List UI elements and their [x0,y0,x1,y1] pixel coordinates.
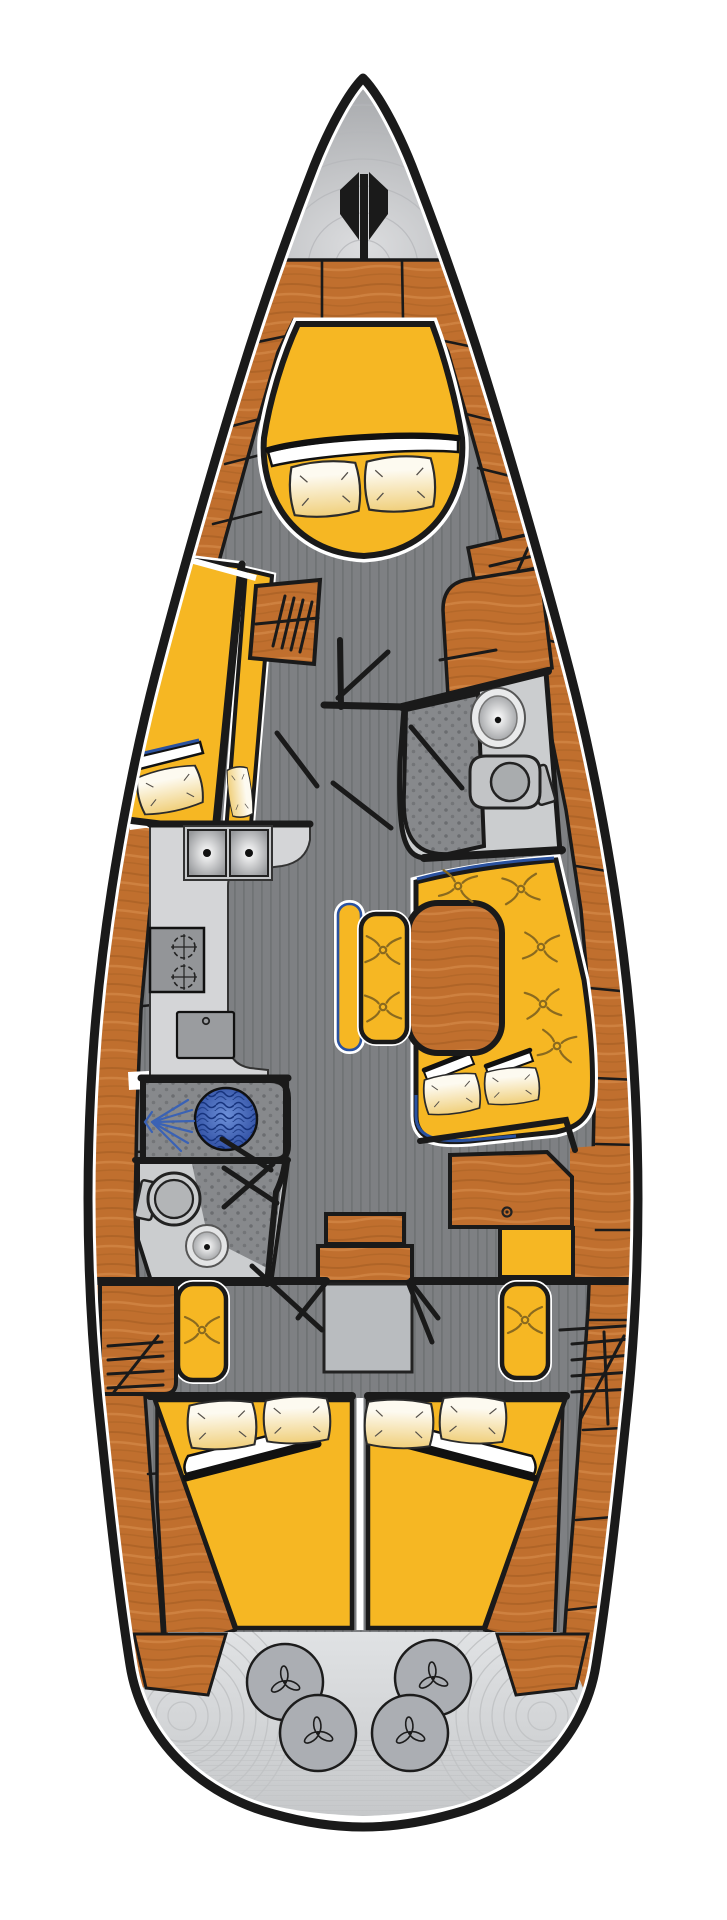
toilet [470,756,556,808]
pillow [364,1399,434,1450]
nav-bench [500,1228,573,1277]
salon-table [408,903,502,1053]
companionway-step [318,1246,412,1282]
washbasin [186,1225,228,1267]
pillow [483,1066,541,1107]
stern-trim [134,1634,226,1695]
toilet [134,1173,200,1225]
pillow [288,459,362,519]
companionway-step [326,1214,404,1244]
refrigerator [177,1012,234,1058]
seat [502,1284,548,1378]
engine-compartment [324,1284,412,1372]
pillow [422,1071,482,1117]
salon-bench [338,904,407,1050]
washbasin [471,688,525,748]
aft-head [134,1078,288,1284]
pillow [439,1395,508,1445]
port-hanging-locker [250,580,320,664]
pillow [186,1399,257,1451]
galley-double-sink [184,826,272,880]
pillow [263,1395,331,1444]
v-berth [264,324,463,556]
stern-platform [72,1606,652,1830]
port-aft-locker [100,1284,176,1394]
yacht-layout-diagram [0,0,727,1920]
stove [150,928,204,992]
pillow [364,455,437,514]
yacht-layout-canvas [0,0,727,1920]
